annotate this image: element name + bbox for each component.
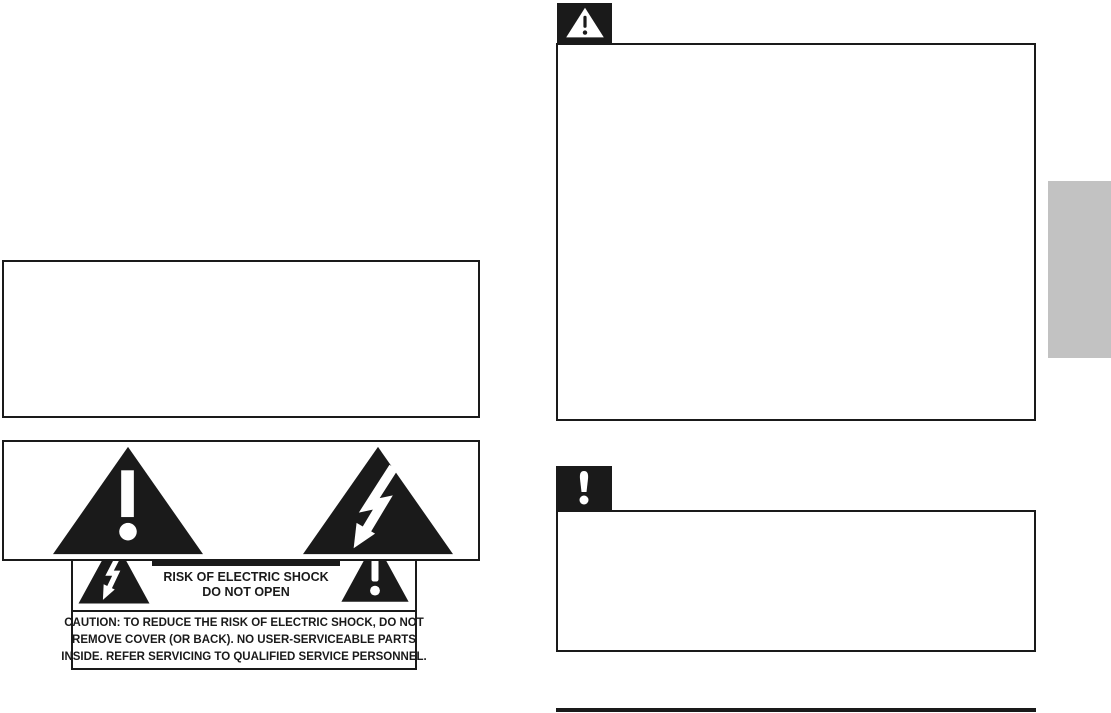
footer-rule (556, 708, 1036, 712)
manual-page: CAUTION RISK OF ELECTRIC SHOCK DO NOT OP… (0, 0, 1111, 713)
notice-line-3: INSIDE. REFER SERVICING TO QUALIFIED SER… (61, 649, 427, 666)
risk-line-2: DO NOT OPEN (141, 585, 351, 600)
warning-note-icon (557, 3, 612, 43)
caution-note-box (556, 510, 1036, 652)
caution-notice-text: CAUTION: TO REDUCE THE RISK OF ELECTRIC … (73, 612, 415, 668)
notice-line-2: REMOVE COVER (OR BACK). NO USER-SERVICEA… (72, 632, 416, 649)
warning-note-box (556, 43, 1036, 421)
chapter-tab (1048, 181, 1111, 358)
caution-label-outer-box: CAUTION RISK OF ELECTRIC SHOCK DO NOT OP… (2, 260, 480, 418)
caution-note-icon (556, 466, 612, 510)
risk-of-shock-text: RISK OF ELECTRIC SHOCK DO NOT OPEN (141, 570, 351, 600)
risk-line-1: RISK OF ELECTRIC SHOCK (141, 570, 351, 585)
large-lightning-triangle-icon (300, 444, 456, 562)
large-exclamation-triangle-icon (50, 444, 206, 562)
notice-line-1: CAUTION: TO REDUCE THE RISK OF ELECTRIC … (64, 615, 424, 632)
warning-symbols-box (2, 440, 480, 561)
